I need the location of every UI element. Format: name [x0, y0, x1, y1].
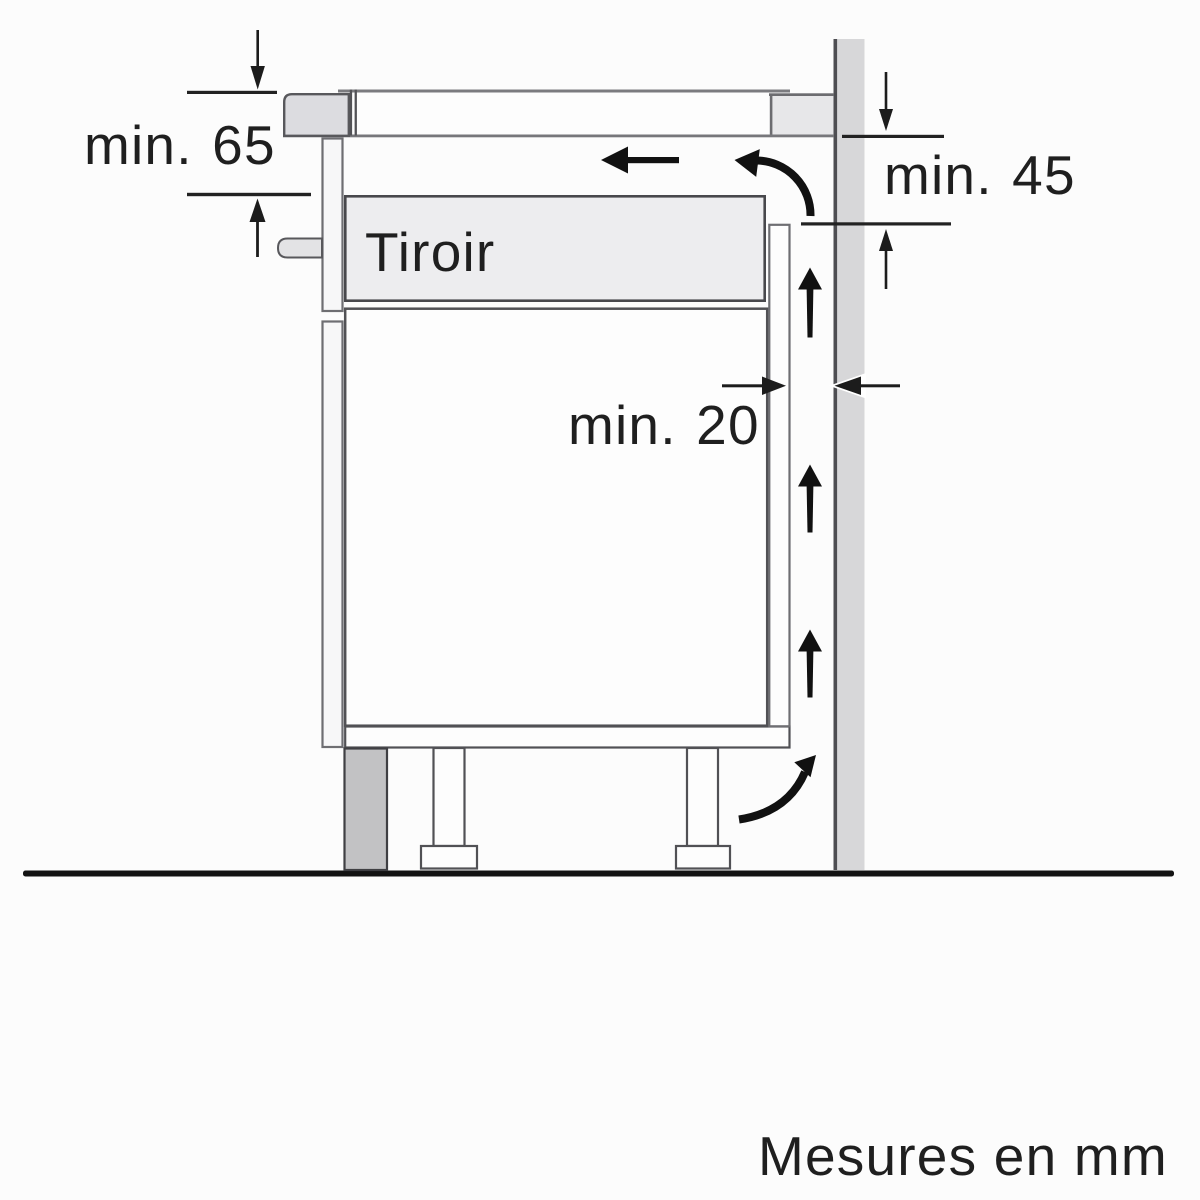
svg-text:Tiroir: Tiroir [365, 221, 495, 283]
svg-text:min. 45: min. 45 [884, 144, 1076, 206]
svg-text:Mesures en mm: Mesures en mm [758, 1125, 1168, 1187]
svg-text:min. 65: min. 65 [84, 114, 276, 176]
svg-text:min. 20: min. 20 [568, 394, 760, 456]
